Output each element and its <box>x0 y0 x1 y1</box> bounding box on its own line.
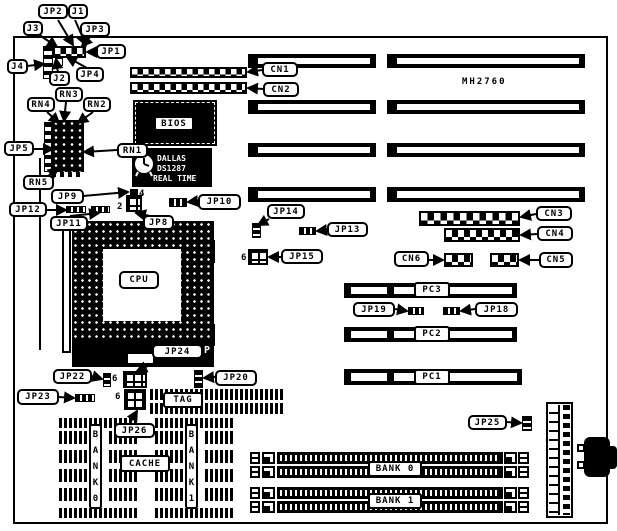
callout-j2: J2 <box>49 71 70 86</box>
jp11-jumper <box>91 206 110 213</box>
simm-end <box>250 501 260 513</box>
jp24-pin-block <box>123 371 147 388</box>
callout-jp13: JP13 <box>327 222 368 237</box>
jp14-jumper <box>252 223 261 238</box>
cache-chip <box>203 450 233 463</box>
callout-jp5: JP5 <box>4 141 34 156</box>
jp8-pin2-marker: 2 <box>117 202 122 212</box>
jp12-jumper <box>66 206 86 213</box>
callout-cn2: CN2 <box>263 82 299 97</box>
jp10-jumper <box>169 198 187 207</box>
isa-slot-4-right <box>387 187 585 202</box>
simm-clip <box>504 452 517 464</box>
cache-chip <box>107 488 137 501</box>
isa-slot-2-right <box>387 100 585 114</box>
callout-simm-bank0: BANK 0 <box>368 461 422 477</box>
callout-jp25: JP25 <box>468 415 507 430</box>
jp24-block-pin6-marker: 6 <box>112 374 117 384</box>
jumper-cap <box>55 58 63 66</box>
simm-clip <box>262 452 275 464</box>
callout-cn1: CN1 <box>262 62 298 77</box>
cache-chip <box>57 469 87 482</box>
callout-jp9: JP9 <box>51 189 84 204</box>
simm-clip <box>262 466 275 478</box>
power-connector-pins <box>563 405 570 515</box>
cn5-pin-header <box>490 253 519 267</box>
motherboard-diagram: MH2760 DALLAS DS1287 <box>0 0 617 531</box>
jp15-pin6-marker: 6 <box>241 253 246 263</box>
simm-end <box>250 466 260 478</box>
isa-slot-3-left <box>248 143 376 157</box>
jp19-jumper <box>408 307 424 315</box>
jp20-jumper <box>194 370 203 388</box>
simm-clip <box>504 487 517 499</box>
cn6-pin-header <box>444 253 473 267</box>
cache-chip <box>203 469 233 482</box>
callout-jp15: JP15 <box>281 249 323 264</box>
power-connector <box>546 402 573 518</box>
callout-jp10: JP10 <box>198 194 241 210</box>
socket-p-marker: P <box>204 345 210 356</box>
jp26-pin-block <box>124 389 146 410</box>
jp8-pin4-marker: 4 <box>139 189 144 199</box>
simm-end <box>250 452 260 464</box>
callout-jp3: JP3 <box>80 22 110 37</box>
jp23-jumper <box>75 394 95 402</box>
callout-j1: J1 <box>68 4 88 19</box>
callout-jp22: JP22 <box>53 369 92 384</box>
callout-jp24: JP24 <box>152 344 203 359</box>
callout-rn5: RN5 <box>23 175 54 190</box>
cache-chip <box>153 431 183 444</box>
cache-chip <box>203 488 233 501</box>
callout-pc1: PC1 <box>414 369 450 385</box>
dallas-model-text: DS1287 <box>157 164 186 174</box>
callout-jp12: JP12 <box>9 202 47 217</box>
jp26-block-pin6-marker: 6 <box>115 392 120 402</box>
simm-end <box>518 466 529 478</box>
callout-jp19: JP19 <box>353 302 395 317</box>
keyboard-din-connector <box>584 437 610 477</box>
callout-j3: J3 <box>23 21 43 36</box>
rn-block-pins <box>52 172 84 177</box>
rn-block <box>52 120 84 172</box>
callout-rn2: RN2 <box>83 97 111 112</box>
isa-slot-2-left <box>248 100 376 114</box>
callout-cn6: CN6 <box>394 251 429 267</box>
callout-jp4: JP4 <box>76 67 104 82</box>
board-model-text: MH2760 <box>462 77 507 87</box>
callout-jp14: JP14 <box>267 204 305 219</box>
cn1-pin-header <box>130 67 247 78</box>
callout-jp18: JP18 <box>475 302 518 317</box>
jp22-jumper <box>103 373 111 387</box>
keyboard-din-pin <box>577 444 585 452</box>
simm-end <box>518 501 529 513</box>
dallas-brand-text: DALLAS <box>157 154 186 164</box>
callout-jp26: JP26 <box>114 423 155 438</box>
jp18-jumper <box>443 307 460 315</box>
callout-simm-bank1: BANK 1 <box>368 493 422 509</box>
callout-cache: CACHE <box>120 455 170 472</box>
callout-cn3: CN3 <box>536 206 572 221</box>
callout-jp11: JP11 <box>50 216 88 231</box>
cache-chip <box>57 431 87 444</box>
cache-chip <box>203 431 233 444</box>
callout-pc2: PC2 <box>414 326 450 342</box>
isa-slot-3-right <box>387 143 585 157</box>
jp25-jumper <box>522 416 532 431</box>
jp13-jumper <box>299 227 316 235</box>
callout-cache-bank0: BANK0 <box>89 424 102 509</box>
callout-bios: BIOS <box>154 116 194 131</box>
isa-slot-1-right <box>387 54 585 68</box>
callout-cn4: CN4 <box>537 226 573 241</box>
callout-jp23: JP23 <box>17 389 59 405</box>
isa-slot-4-left <box>248 187 376 202</box>
keyboard-din-pin <box>577 461 585 469</box>
cache-chip <box>153 488 183 501</box>
callout-rn3: RN3 <box>55 87 83 102</box>
callout-cpu: CPU <box>119 271 159 289</box>
callout-j4: J4 <box>7 59 28 74</box>
cn4-pin-header <box>444 228 520 242</box>
callout-tag: TAG <box>163 392 203 408</box>
keyboard-din-barrel <box>608 446 617 469</box>
cn3-pin-header <box>419 211 520 226</box>
cpu-socket-lever <box>62 223 71 353</box>
socket-key-notch <box>128 354 153 363</box>
jp15-pin-block <box>248 249 268 265</box>
callout-cn5: CN5 <box>539 252 573 268</box>
simm-clip <box>262 501 275 513</box>
simm-clip <box>504 466 517 478</box>
simm-end <box>518 487 529 499</box>
simm-clip <box>504 501 517 513</box>
simm-end <box>250 487 260 499</box>
dallas-type-text: REAL TIME <box>153 174 196 184</box>
callout-rn1: RN1 <box>117 143 148 158</box>
cn2-pin-header <box>130 82 247 94</box>
rn5-strip <box>44 122 52 172</box>
callout-pc3: PC3 <box>414 282 450 298</box>
jp1-pin-header <box>53 46 86 58</box>
callout-jp8: JP8 <box>143 215 174 230</box>
callout-jp20: JP20 <box>215 370 257 386</box>
simm-end <box>518 452 529 464</box>
cache-chip <box>57 450 87 463</box>
cache-bank0-bottom-chip <box>57 508 137 518</box>
callout-jp1: JP1 <box>96 44 126 59</box>
callout-cache-bank1: BANK1 <box>185 424 198 509</box>
cache-bank1-bottom-chip <box>153 508 233 518</box>
callout-jp2: JP2 <box>38 4 68 19</box>
cache-chip <box>57 488 87 501</box>
power-connector-holes <box>549 405 560 515</box>
callout-rn4: RN4 <box>27 97 55 112</box>
simm-clip <box>262 487 275 499</box>
